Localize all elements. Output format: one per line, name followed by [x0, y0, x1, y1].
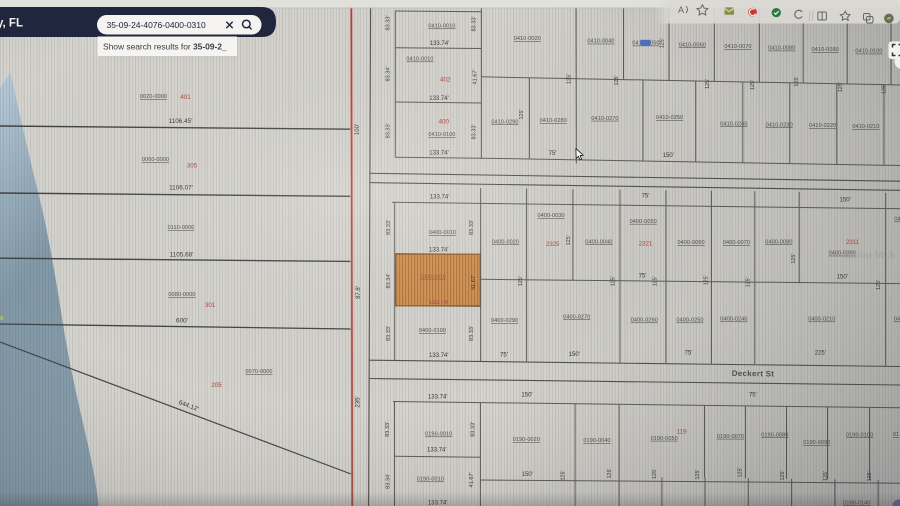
- svg-text:35-09-24-4076-0400-0310: 35-09-24-4076-0400-0310: [107, 20, 207, 30]
- svg-text:y, FL: y, FL: [0, 18, 23, 30]
- svg-text:A: A: [678, 5, 684, 15]
- svg-text:Show search results for 35-09-: Show search results for 35-09-2_: [103, 42, 227, 52]
